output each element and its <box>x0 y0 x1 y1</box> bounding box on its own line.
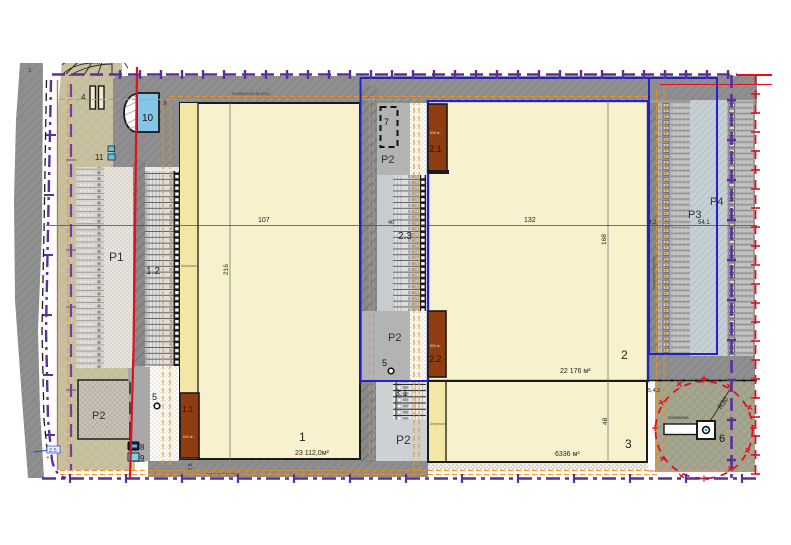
svg-text:11: 11 <box>95 153 104 162</box>
svg-text:пожарный проезд: пожарный проезд <box>232 90 269 96</box>
svg-text:Антресоль: Антресоль <box>181 264 197 268</box>
svg-text:7,9: 7,9 <box>188 463 194 471</box>
svg-text:1.2: 1.2 <box>146 266 160 277</box>
svg-text:9: 9 <box>163 100 167 107</box>
svg-text:40: 40 <box>388 220 394 226</box>
svg-text:48: 48 <box>602 417 609 425</box>
svg-text:P1: P1 <box>109 250 124 264</box>
svg-text:6: 6 <box>719 433 725 445</box>
svg-text:5: 5 <box>152 392 157 402</box>
svg-text:P2: P2 <box>92 410 105 422</box>
svg-text:800 м²: 800 м² <box>430 344 441 348</box>
svg-text:3: 3 <box>625 437 632 451</box>
svg-text:2.1: 2.1 <box>429 144 442 154</box>
svg-text:1: 1 <box>299 430 306 444</box>
svg-text:107: 107 <box>258 217 270 224</box>
svg-text:5,4,2: 5,4,2 <box>648 388 660 394</box>
svg-text:Антресоль: Антресоль <box>430 422 446 426</box>
svg-text:2,5: 2,5 <box>49 448 57 454</box>
svg-text:3: 3 <box>28 68 31 74</box>
svg-text:4: 4 <box>81 93 86 102</box>
svg-text:P2: P2 <box>388 332 401 344</box>
svg-text:2.2: 2.2 <box>429 354 442 364</box>
svg-text:P2: P2 <box>381 154 394 166</box>
svg-text:132: 132 <box>524 217 536 224</box>
svg-text:600 м²: 600 м² <box>430 131 441 135</box>
svg-text:9: 9 <box>140 454 145 463</box>
svg-text:54,1: 54,1 <box>698 220 710 226</box>
svg-text:216: 216 <box>223 264 230 275</box>
svg-text:600 м²: 600 м² <box>183 435 194 439</box>
svg-text:пожарный проезд: пожарный проезд <box>206 471 239 476</box>
svg-text:6336 м²: 6336 м² <box>555 451 580 458</box>
svg-text:Скважина: Скважина <box>668 415 689 420</box>
svg-text:7: 7 <box>384 117 389 127</box>
svg-text:10: 10 <box>142 113 154 124</box>
svg-text:P2: P2 <box>396 433 411 447</box>
svg-text:2.3: 2.3 <box>398 231 412 242</box>
svg-text:3.1: 3.1 <box>395 388 408 398</box>
svg-text:1.1: 1.1 <box>182 405 194 414</box>
svg-text:2: 2 <box>621 348 628 362</box>
svg-text:пожарный проезд: пожарный проезд <box>651 257 656 290</box>
svg-text:23 112,0м²: 23 112,0м² <box>295 450 330 457</box>
svg-text:5: 5 <box>382 358 387 368</box>
svg-text:8: 8 <box>140 443 145 452</box>
svg-text:168: 168 <box>601 234 608 245</box>
svg-text:22 176 м²: 22 176 м² <box>560 368 591 375</box>
